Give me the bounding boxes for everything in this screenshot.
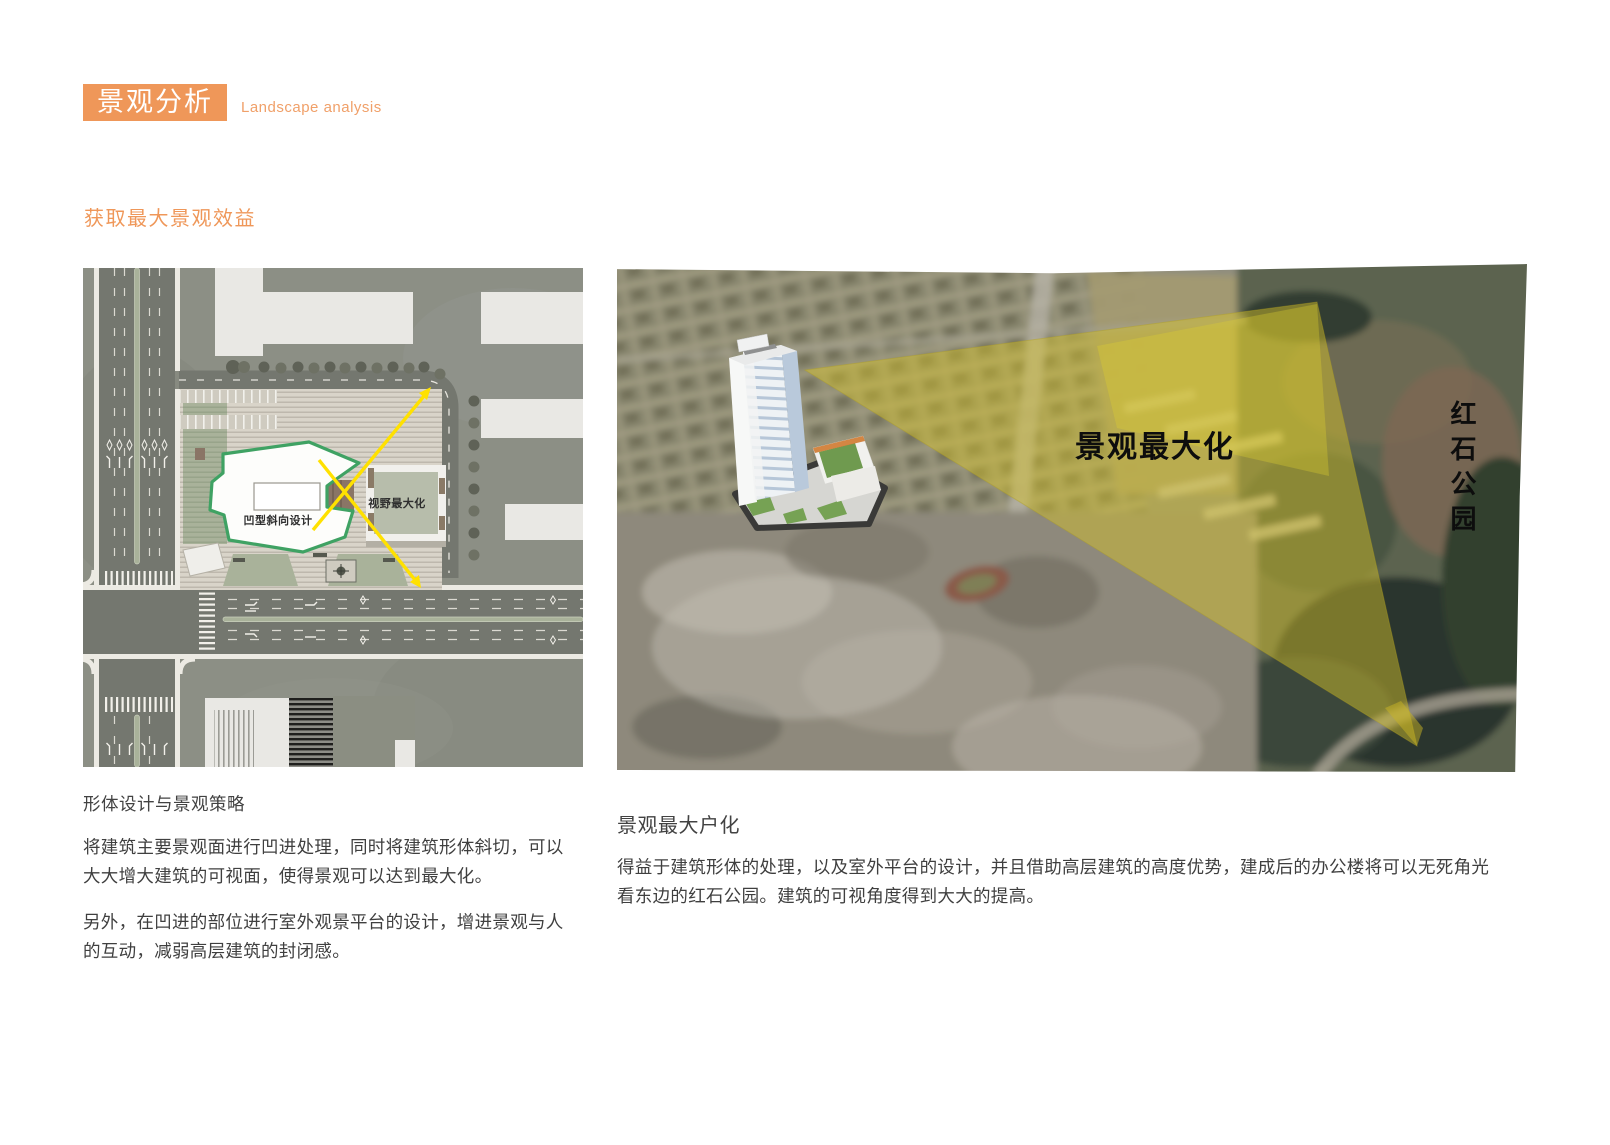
page: 景观分析 Landscape analysis 获取最大景观效益 — [0, 0, 1610, 1145]
aerial-graphic — [617, 262, 1527, 772]
label-concave-design: 凹型斜向设计 — [239, 512, 317, 528]
building-core — [254, 483, 320, 510]
page-title-badge: 景观分析 — [83, 84, 227, 121]
left-text-para2: 另外，在凹进的部位进行室外观景平台的设计，增进景观与人的互动，减弱高层建筑的封闭… — [83, 908, 565, 966]
left-text-para1: 将建筑主要景观面进行凹进处理，同时将建筑形体斜切，可以大大增大建筑的可视面，使得… — [83, 833, 565, 891]
site-plan-image: 凹型斜向设计 视野最大化 — [83, 268, 583, 767]
page-subtitle: Landscape analysis — [241, 99, 382, 116]
label-view-maximize: 视野最大化 — [366, 495, 428, 511]
right-text-para1: 得益于建筑形体的处理，以及室外平台的设计，并且借助高层建筑的高度优势，建成后的办… — [617, 853, 1495, 911]
aerial-view-image: 景观最大化 红石公园 — [617, 262, 1527, 772]
label-redstone-park: 红石公园 — [1443, 400, 1480, 540]
right-text-heading: 景观最大户化 — [617, 809, 1495, 838]
right-text-block: 景观最大户化 得益于建筑形体的处理，以及室外平台的设计，并且借助高层建筑的高度优… — [617, 809, 1495, 911]
label-landscape-maximize: 景观最大化 — [1055, 422, 1255, 466]
left-text-block: 形体设计与景观策略 将建筑主要景观面进行凹进处理，同时将建筑形体斜切，可以大大增… — [83, 791, 565, 966]
section-title: 获取最大景观效益 — [84, 202, 256, 231]
site-plan-graphic — [83, 268, 583, 767]
bottom-buildings — [205, 696, 415, 767]
left-text-heading: 形体设计与景观策略 — [83, 791, 565, 816]
